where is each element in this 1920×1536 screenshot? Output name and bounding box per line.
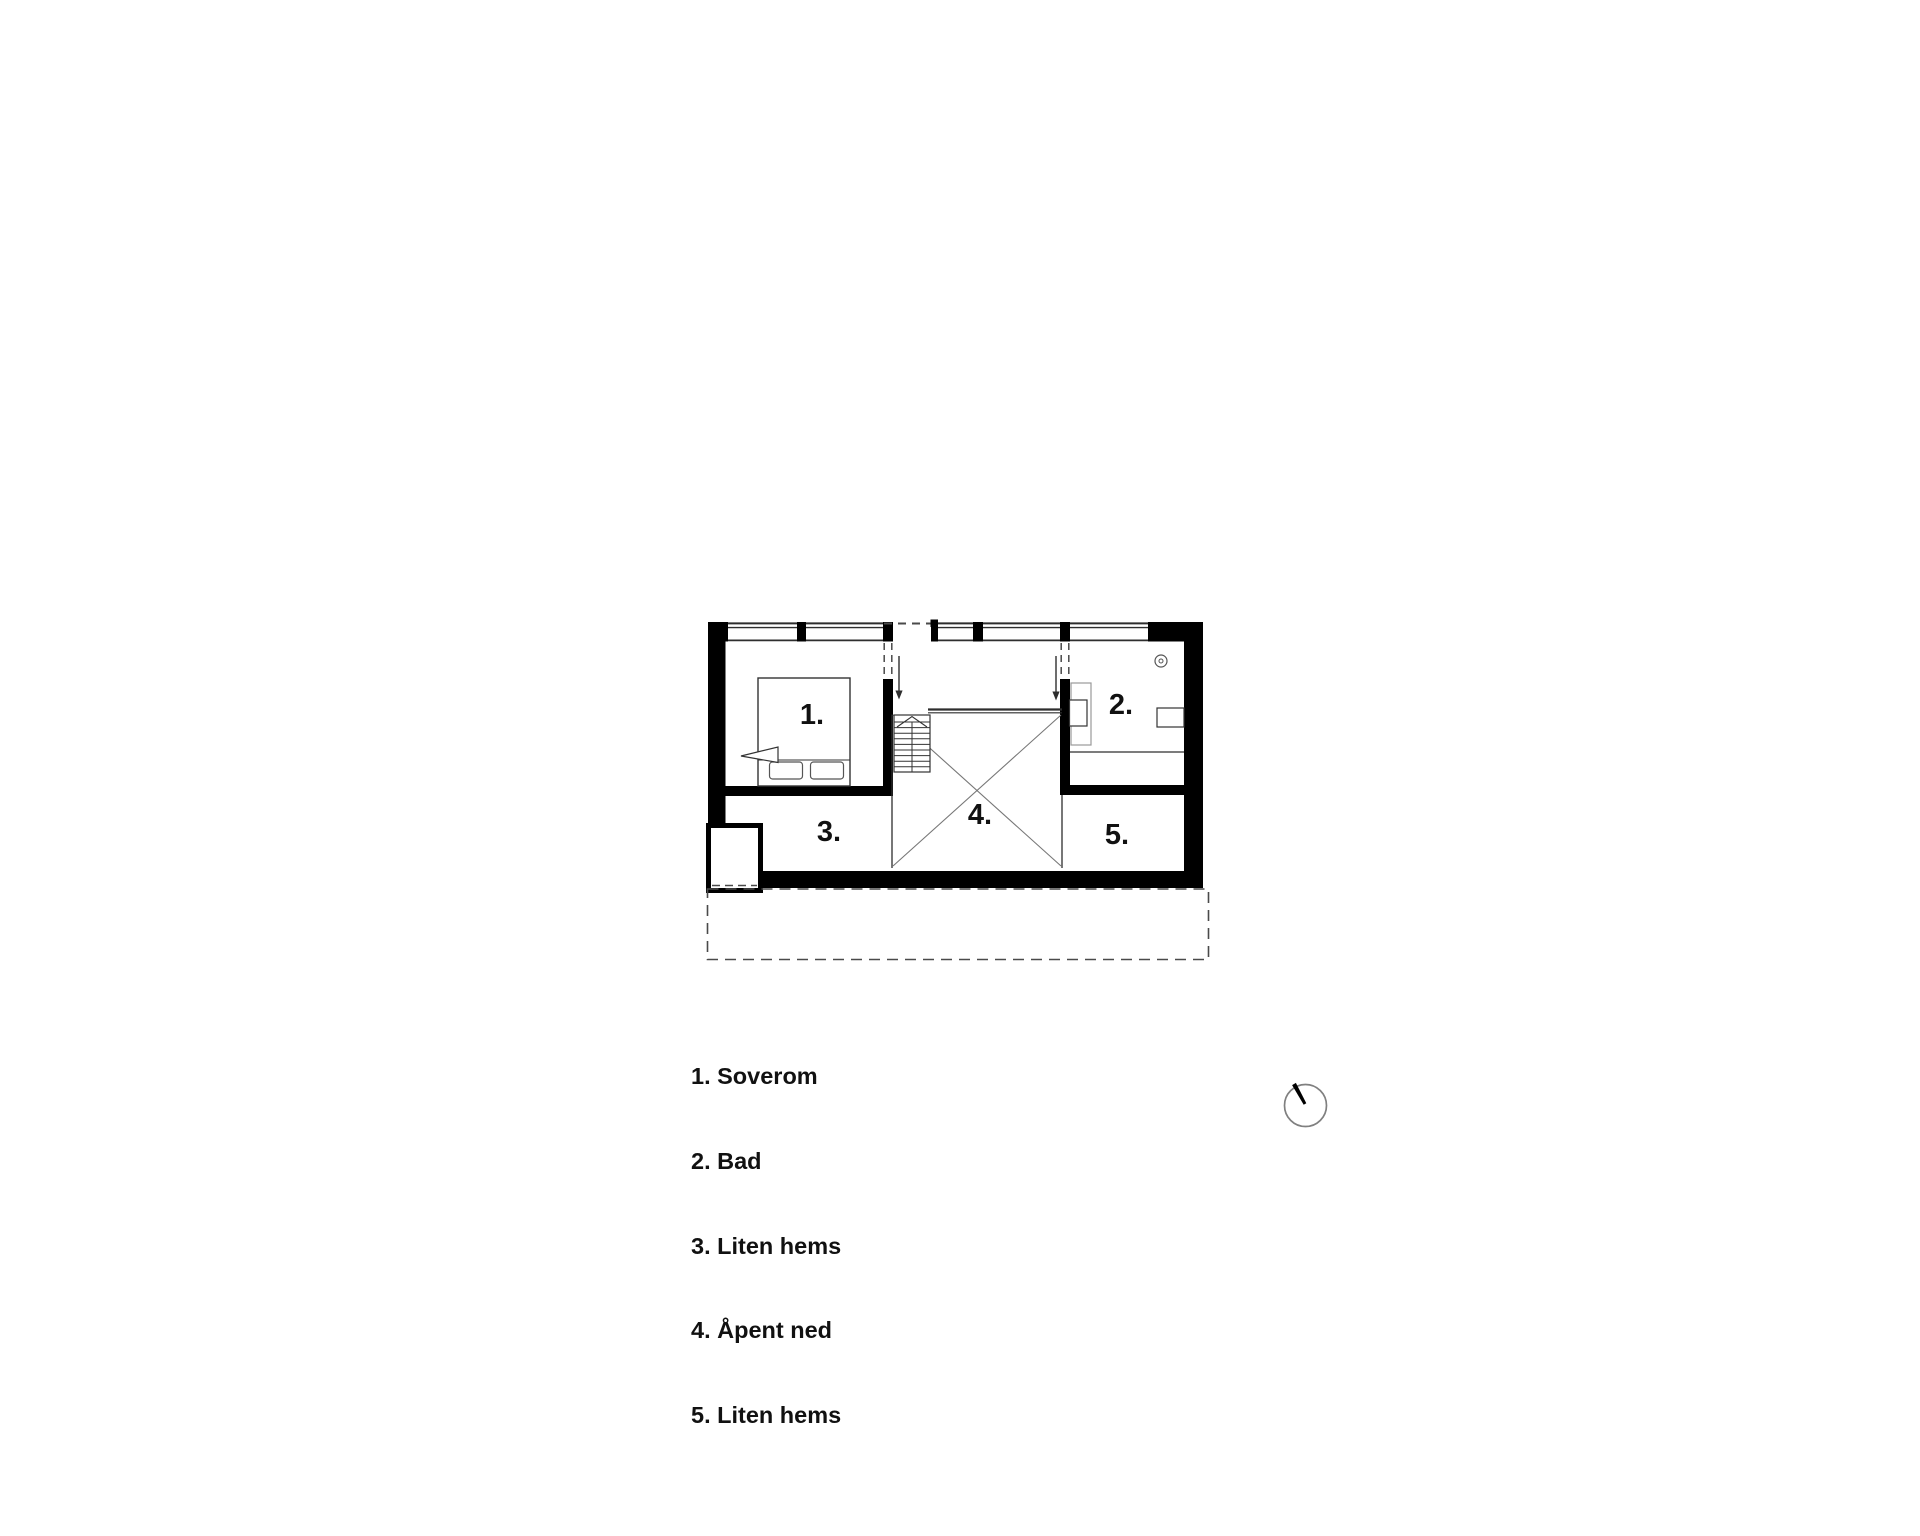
- down-arrow-icon: [1052, 656, 1059, 701]
- window: [1070, 622, 1148, 642]
- room-3-label: 3.: [817, 816, 841, 848]
- window: [983, 622, 1060, 642]
- chimney-box: [709, 826, 761, 891]
- page: 1. 2. 3. 4. 5. 1. Soverom 2. Bad 3. Lite…: [0, 0, 1920, 1536]
- bed: [741, 678, 850, 786]
- railing: [928, 710, 1062, 713]
- legend-item: 5. Liten hems: [691, 1401, 841, 1429]
- ceiling-light-icon: [1155, 655, 1167, 667]
- room-1-label: 1.: [800, 699, 824, 731]
- window: [728, 622, 797, 642]
- room-2-label: 2.: [1109, 689, 1133, 721]
- sink: [1070, 700, 1088, 726]
- toilet: [1157, 708, 1184, 727]
- room-4-label: 4.: [968, 799, 992, 831]
- bath-south-wall: [1060, 785, 1188, 795]
- legend-item: 1. Soverom: [691, 1062, 841, 1090]
- window: [806, 622, 883, 642]
- bedroom-south-wall: [708, 786, 893, 796]
- legend-item: 2. Bad: [691, 1147, 841, 1175]
- right-wall: [1184, 641, 1203, 888]
- bottom-wall: [760, 871, 1203, 888]
- legend-item: 3. Liten hems: [691, 1232, 841, 1260]
- pillow: [811, 762, 844, 779]
- north-arrow-icon: [1285, 1083, 1327, 1127]
- dashed-footprint-outline: [708, 889, 1209, 960]
- stairs: [894, 715, 930, 772]
- window: [938, 622, 973, 642]
- legend-item: 4. Åpent ned: [691, 1316, 841, 1344]
- opening-end-post: [931, 620, 939, 628]
- bath-west-wall: [1060, 679, 1070, 795]
- floor-plan-drawing: 1. 2. 3. 4. 5.: [0, 0, 1920, 1536]
- pillow: [770, 762, 803, 779]
- legend: 1. Soverom 2. Bad 3. Liten hems 4. Åpent…: [691, 1006, 841, 1485]
- room-5-label: 5.: [1105, 819, 1129, 851]
- down-arrow-icon: [895, 656, 902, 700]
